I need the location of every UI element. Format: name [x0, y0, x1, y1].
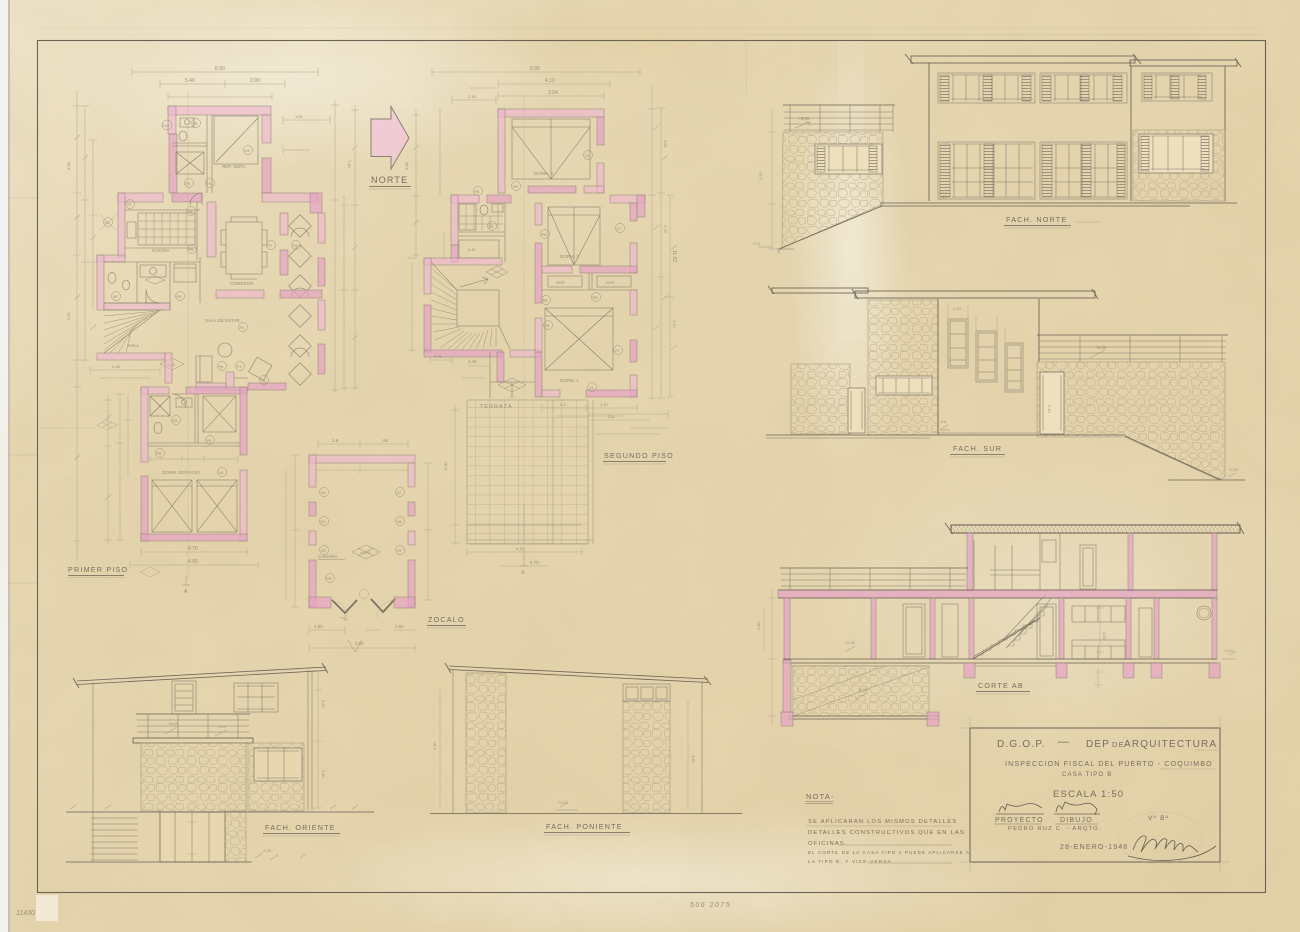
svg-text:SALA DE ESTAR: SALA DE ESTAR [205, 318, 240, 323]
svg-text:+6.00: +6.00 [798, 116, 810, 121]
svg-text:FACH. NORTE: FACH. NORTE [1006, 215, 1067, 224]
svg-text:FACH. PONIENTE: FACH. PONIENTE [546, 822, 623, 831]
svg-text:2.4: 2.4 [560, 402, 566, 407]
svg-text:14: 14 [589, 385, 594, 390]
svg-text:+2.20: +2.20 [845, 640, 856, 645]
svg-text:ARQUITECTURA: ARQUITECTURA [1124, 739, 1217, 750]
svg-text:P8: P8 [327, 576, 333, 581]
svg-text:P5: P5 [186, 181, 192, 186]
svg-text:PRIMER PISO: PRIMER PISO [68, 565, 128, 574]
svg-text:COMEDOR: COMEDOR [230, 281, 254, 286]
svg-text:.50: .50 [382, 438, 389, 443]
svg-text:1.10: 1.10 [600, 402, 609, 407]
svg-text:V8: V8 [397, 519, 403, 524]
svg-text:11.62: 11.62 [671, 250, 677, 262]
svg-text:+2.20: +2.20 [558, 800, 569, 805]
svg-text:V8: V8 [321, 490, 327, 495]
svg-text:P6: P6 [188, 209, 194, 214]
svg-text:1.55: 1.55 [314, 624, 323, 629]
svg-text:2.60: 2.60 [355, 641, 364, 646]
svg-text:DIBUJO: DIBUJO [1060, 817, 1093, 824]
svg-text:V6: V6 [113, 294, 119, 299]
svg-text:2.60: 2.60 [321, 700, 326, 709]
svg-text:1.60: 1.60 [395, 624, 404, 629]
svg-text:DORM. 2: DORM. 2 [560, 254, 579, 259]
svg-text:2.50: 2.50 [1102, 632, 1107, 641]
svg-text:2.50: 2.50 [756, 621, 761, 630]
svg-text:OFICINAS.: OFICINAS. [808, 841, 848, 847]
svg-text:P5: P5 [173, 418, 179, 423]
svg-text:P4: P4 [207, 181, 213, 186]
svg-text:Pp: Pp [219, 364, 225, 369]
svg-text:P8: P8 [542, 232, 548, 237]
svg-text:ESCALA 1:50: ESCALA 1:50 [1053, 789, 1124, 800]
svg-text:P8: P8 [489, 224, 495, 229]
svg-text:5.40: 5.40 [185, 78, 195, 84]
svg-text:P8: P8 [593, 295, 599, 300]
svg-text:2.96: 2.96 [112, 364, 121, 369]
svg-text:P5: P5 [193, 121, 199, 126]
svg-text:-2.20: -2.20 [262, 848, 272, 853]
svg-text:5.75: 5.75 [434, 354, 443, 359]
svg-text:4.70: 4.70 [188, 546, 198, 552]
svg-text:P8: P8 [543, 298, 549, 303]
svg-text:P5: P5 [157, 451, 163, 456]
svg-text:506 2075: 506 2075 [690, 902, 731, 909]
svg-text:HALL: HALL [128, 343, 140, 348]
svg-text:V4: V4 [245, 148, 251, 153]
svg-text:DE: DE [1112, 740, 1125, 749]
svg-text:V7: V7 [617, 226, 623, 231]
svg-text:DETALLES CONSTRUCTIVOS QUE EN: DETALLES CONSTRUCTIVOS QUE EN LAS [808, 830, 965, 836]
svg-text:+2.20: +2.20 [1228, 467, 1239, 472]
svg-text:P6: P6 [189, 247, 195, 252]
svg-text:5.40: 5.40 [404, 161, 409, 170]
svg-text:+-0.0: +-0.0 [1224, 648, 1234, 653]
svg-text:V2: V2 [397, 490, 403, 495]
svg-text:+-0.0: +-0.0 [938, 190, 948, 195]
svg-text:3.90: 3.90 [66, 161, 71, 170]
svg-text:2.45: 2.45 [468, 94, 477, 99]
svg-text:5.52: 5.52 [66, 311, 71, 320]
svg-text:Vº Bº: Vº Bº [1148, 815, 1169, 822]
svg-text:4.40: 4.40 [691, 755, 696, 764]
svg-text:2V2: 2V2 [162, 123, 170, 128]
svg-text:PEDRO RUZ C. - ARQTO.: PEDRO RUZ C. - ARQTO. [1008, 826, 1102, 832]
svg-text:DEP: DEP [1086, 739, 1110, 750]
svg-text:V5: V5 [397, 548, 403, 553]
svg-text:P8: P8 [545, 323, 551, 328]
svg-text:V3: V3 [105, 220, 111, 225]
svg-text:2.79: 2.79 [663, 225, 668, 234]
svg-text:COCINA: COCINA [152, 248, 170, 253]
svg-text:+6.00: +6.00 [168, 721, 179, 726]
svg-text:6.00: 6.00 [443, 461, 448, 470]
svg-text:NORTE: NORTE [371, 175, 408, 185]
svg-text:SEGUNDO PISO: SEGUNDO PISO [604, 451, 674, 460]
svg-text:+5.0: +5.0 [218, 724, 227, 729]
svg-text:—: — [1058, 736, 1070, 748]
svg-text:+0.20: +0.20 [360, 550, 371, 555]
svg-text:EL CORTE DE LA CASA TIPO A PUE: EL CORTE DE LA CASA TIPO A PUEDE APLICAR… [808, 850, 970, 855]
svg-text:FACH. SUR: FACH. SUR [953, 444, 1002, 453]
svg-text:-2.20: -2.20 [858, 687, 868, 692]
svg-text:1.8: 1.8 [332, 438, 339, 443]
svg-text:V8: V8 [513, 184, 519, 189]
svg-text:1.50: 1.50 [295, 114, 304, 119]
svg-text:2.90: 2.90 [250, 78, 260, 84]
svg-text:7.40: 7.40 [347, 160, 352, 169]
svg-text:P5: P5 [177, 294, 183, 299]
svg-text:P7: P7 [268, 243, 274, 248]
svg-text:CAMARA: CAMARA [318, 554, 337, 559]
svg-text:V4: V4 [261, 378, 267, 383]
svg-text:4.70: 4.70 [530, 560, 539, 565]
svg-text:8.90: 8.90 [215, 66, 225, 72]
svg-text:8.90: 8.90 [530, 66, 540, 72]
svg-text:2.20: 2.20 [758, 171, 763, 180]
svg-text:4.90: 4.90 [188, 559, 198, 565]
svg-text:2.50: 2.50 [321, 770, 326, 779]
svg-text:ROP.: ROP. [556, 280, 565, 285]
svg-text:2.10: 2.10 [1047, 405, 1052, 414]
svg-text:ROP.: ROP. [606, 280, 615, 285]
svg-text:D.G.O.P.: D.G.O.P. [997, 739, 1046, 750]
svg-text:+6.00: +6.00 [1095, 345, 1107, 350]
svg-text:REP. SERV.: REP. SERV. [222, 164, 246, 169]
svg-text:P1: P1 [240, 325, 246, 330]
svg-text:CASA TIPO B: CASA TIPO B [1062, 772, 1112, 778]
svg-text:V2: V2 [585, 153, 591, 158]
svg-text:CORTE AB: CORTE AB [978, 681, 1024, 690]
svg-text:+2.2: +2.2 [752, 241, 761, 246]
svg-text:P5: P5 [207, 438, 213, 443]
svg-text:11430: 11430 [16, 910, 35, 917]
svg-text:DORM. SERVICIO: DORM. SERVICIO [162, 470, 200, 475]
svg-text:V5: V5 [321, 548, 327, 553]
svg-text:1.00: 1.00 [953, 306, 962, 311]
svg-text:P2: P2 [293, 243, 299, 248]
svg-text:3.4: 3.4 [608, 414, 615, 419]
svg-text:DORM. 1: DORM. 1 [560, 378, 579, 383]
svg-text:ZOCALO: ZOCALO [428, 615, 465, 624]
svg-text:INSPECCION FISCAL DEL PUERTO -: INSPECCION FISCAL DEL PUERTO - COQUIMBO [1005, 761, 1213, 768]
svg-text:P3: P3 [127, 202, 133, 207]
svg-text:V7: V7 [615, 348, 621, 353]
svg-text:TERRAZA: TERRAZA [480, 404, 513, 410]
svg-text:DORM. 3: DORM. 3 [534, 171, 553, 176]
svg-text:+-0.0: +-0.0 [937, 419, 947, 424]
svg-text:4.10: 4.10 [545, 78, 555, 84]
svg-text:3.54: 3.54 [548, 90, 558, 96]
svg-text:3.81: 3.81 [663, 140, 668, 149]
svg-text:FACH. ORIENTE: FACH. ORIENTE [265, 823, 336, 832]
svg-text:4.70: 4.70 [516, 546, 525, 551]
svg-text:PROYECTO: PROYECTO [995, 817, 1044, 824]
svg-text:28-ENERO-1946: 28-ENERO-1946 [1060, 844, 1129, 851]
svg-text:4.15: 4.15 [672, 320, 677, 329]
svg-text:P8: P8 [475, 189, 481, 194]
svg-text:V4: V4 [219, 470, 225, 475]
svg-text:4.45: 4.45 [468, 359, 477, 364]
svg-text:NOTA-: NOTA- [806, 792, 835, 801]
svg-text:SE APLICARAN LOS MISMOS DETALL: SE APLICARAN LOS MISMOS DETALLES [808, 819, 957, 825]
svg-text:5.90: 5.90 [432, 741, 437, 750]
svg-text:V2: V2 [321, 519, 327, 524]
svg-text:B.M.: B.M. [468, 247, 476, 252]
svg-text:P1: P1 [237, 364, 243, 369]
